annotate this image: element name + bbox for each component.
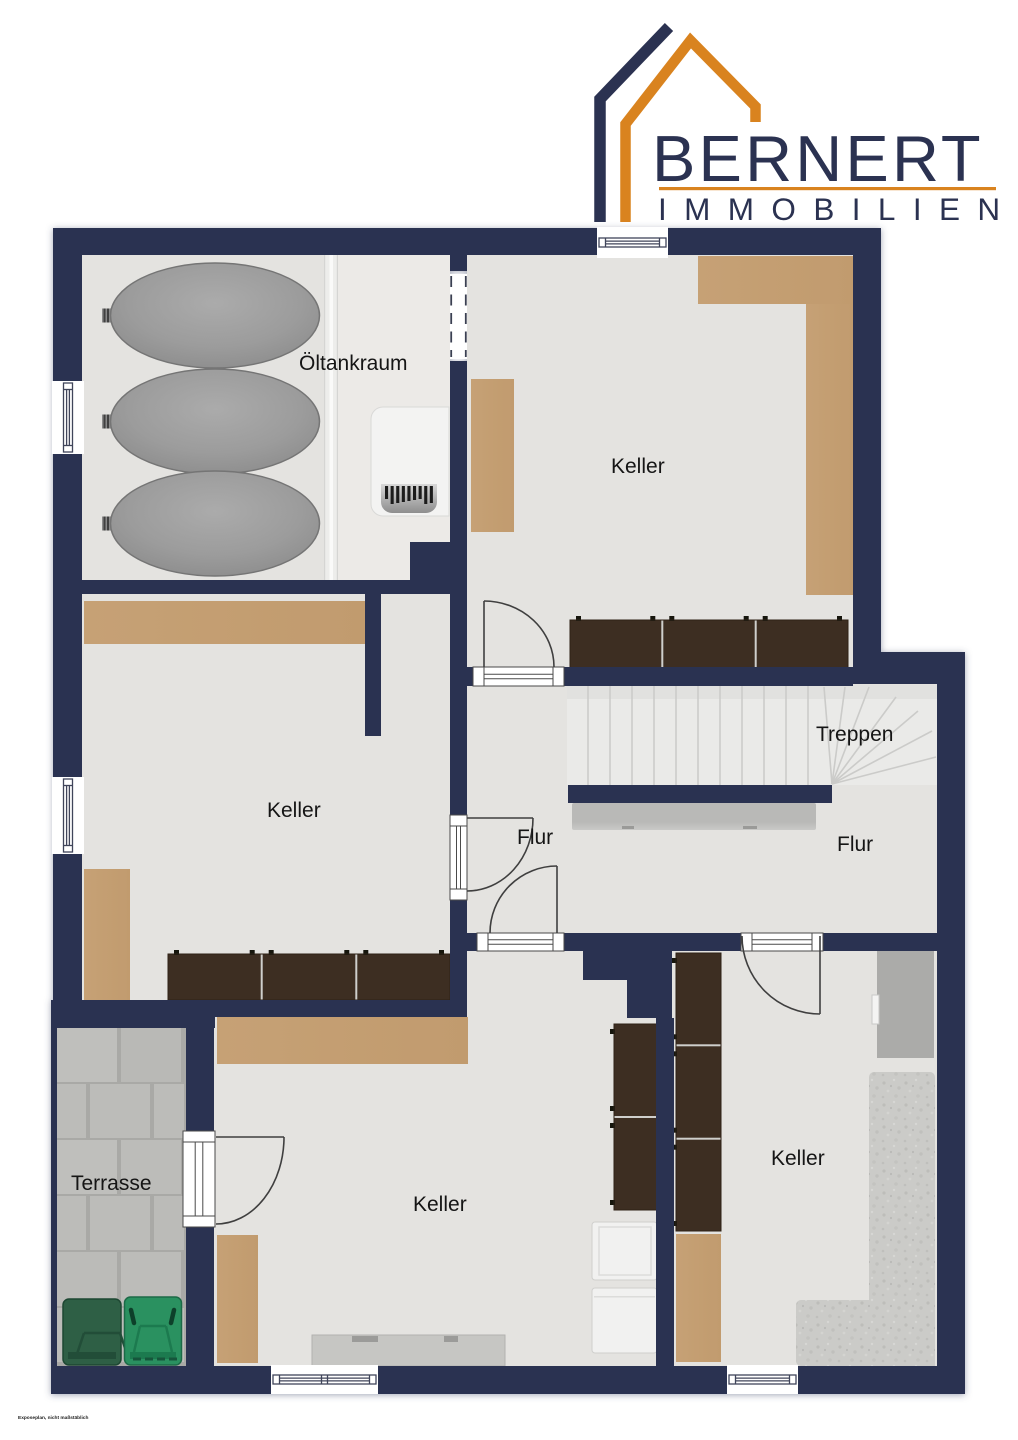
svg-text:Keller: Keller xyxy=(267,799,321,822)
svg-text:Keller: Keller xyxy=(611,455,665,478)
svg-text:BERNERT: BERNERT xyxy=(652,122,984,195)
svg-text:Exposeplan, nicht maßstäblich: Exposeplan, nicht maßstäblich xyxy=(18,1415,88,1421)
svg-text:Keller: Keller xyxy=(771,1147,825,1170)
svg-text:Keller: Keller xyxy=(413,1193,467,1216)
svg-text:Terrasse: Terrasse xyxy=(71,1172,152,1195)
svg-text:Flur: Flur xyxy=(517,826,553,849)
svg-text:Flur: Flur xyxy=(837,833,873,856)
svg-text:Öltankraum: Öltankraum xyxy=(299,352,408,375)
svg-text:Treppen: Treppen xyxy=(816,723,893,746)
svg-text:IMMOBILIEN: IMMOBILIEN xyxy=(658,191,1018,227)
